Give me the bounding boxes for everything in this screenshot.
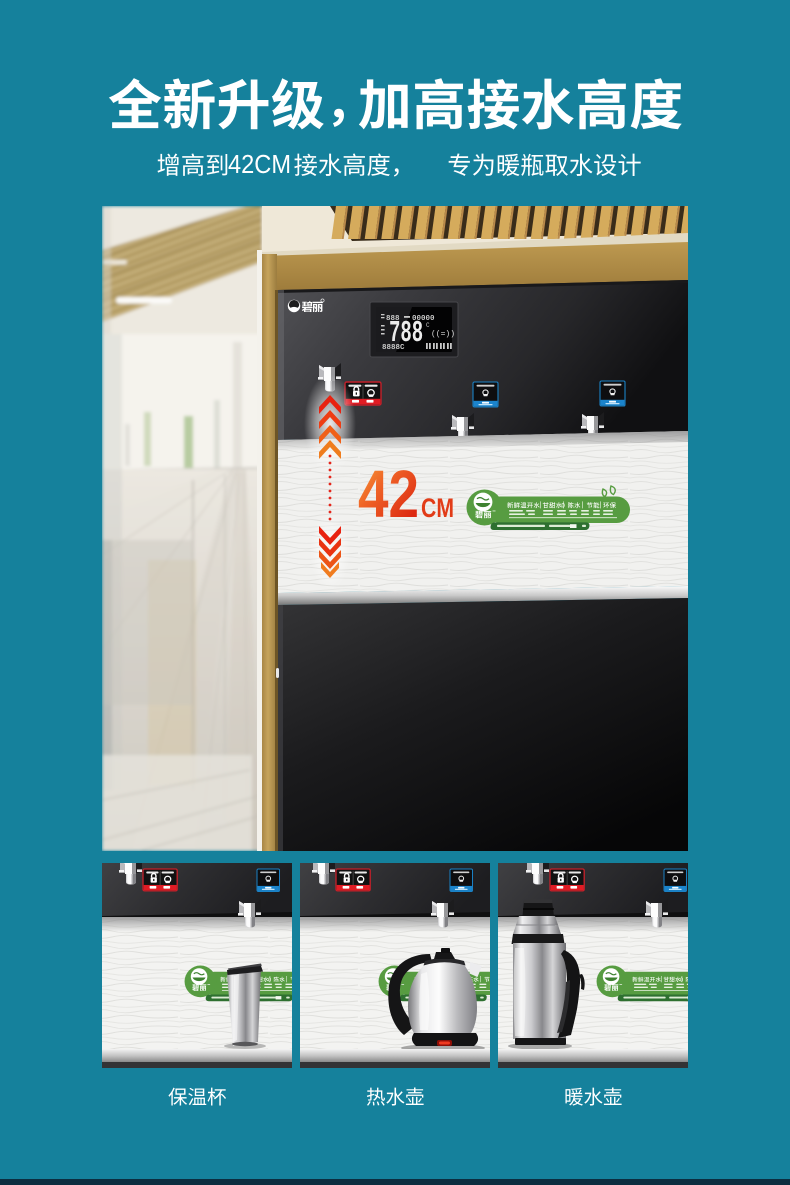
svg-text:C: C [426,322,430,329]
svg-text:0: 0 [268,977,271,983]
svg-text:((=)): ((=)) [431,330,455,339]
svg-text:0: 0 [561,503,565,510]
svg-text:42: 42 [358,457,419,532]
svg-text:8888C: 8888C [382,344,405,352]
svg-text:0: 0 [680,977,683,983]
svg-text:CM: CM [421,493,454,523]
svg-text:42CM: 42CM [228,151,291,179]
